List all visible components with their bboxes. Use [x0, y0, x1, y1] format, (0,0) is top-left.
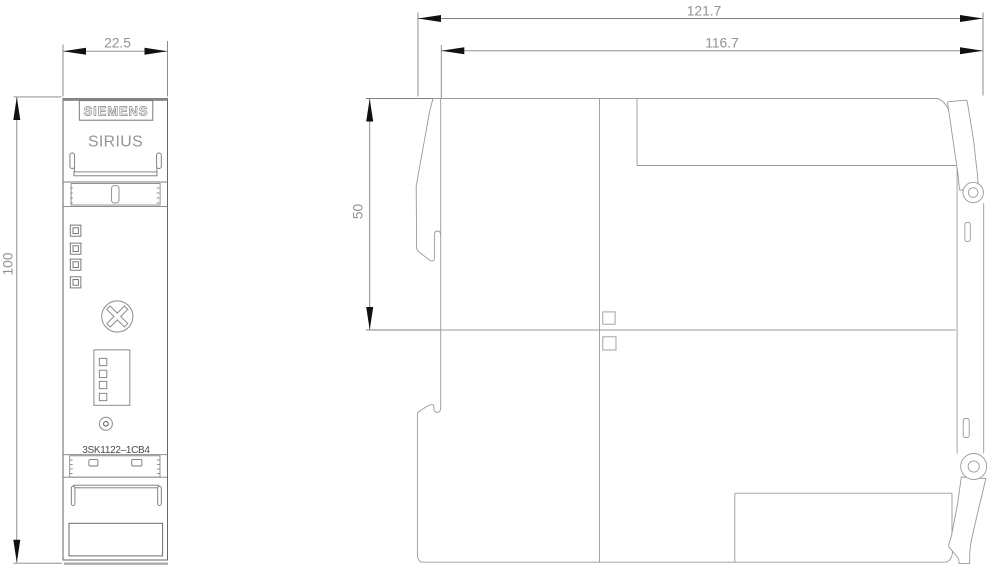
svg-text:SIEMENS: SIEMENS	[84, 103, 149, 118]
svg-text:116.7: 116.7	[705, 36, 739, 51]
svg-text:50: 50	[351, 204, 366, 220]
svg-text:121.7: 121.7	[687, 3, 722, 18]
svg-text:SIRIUS: SIRIUS	[88, 134, 143, 151]
svg-text:22.5: 22.5	[104, 36, 131, 51]
svg-text:3SK1122–1CB4: 3SK1122–1CB4	[82, 445, 150, 456]
svg-text:100: 100	[1, 252, 16, 275]
